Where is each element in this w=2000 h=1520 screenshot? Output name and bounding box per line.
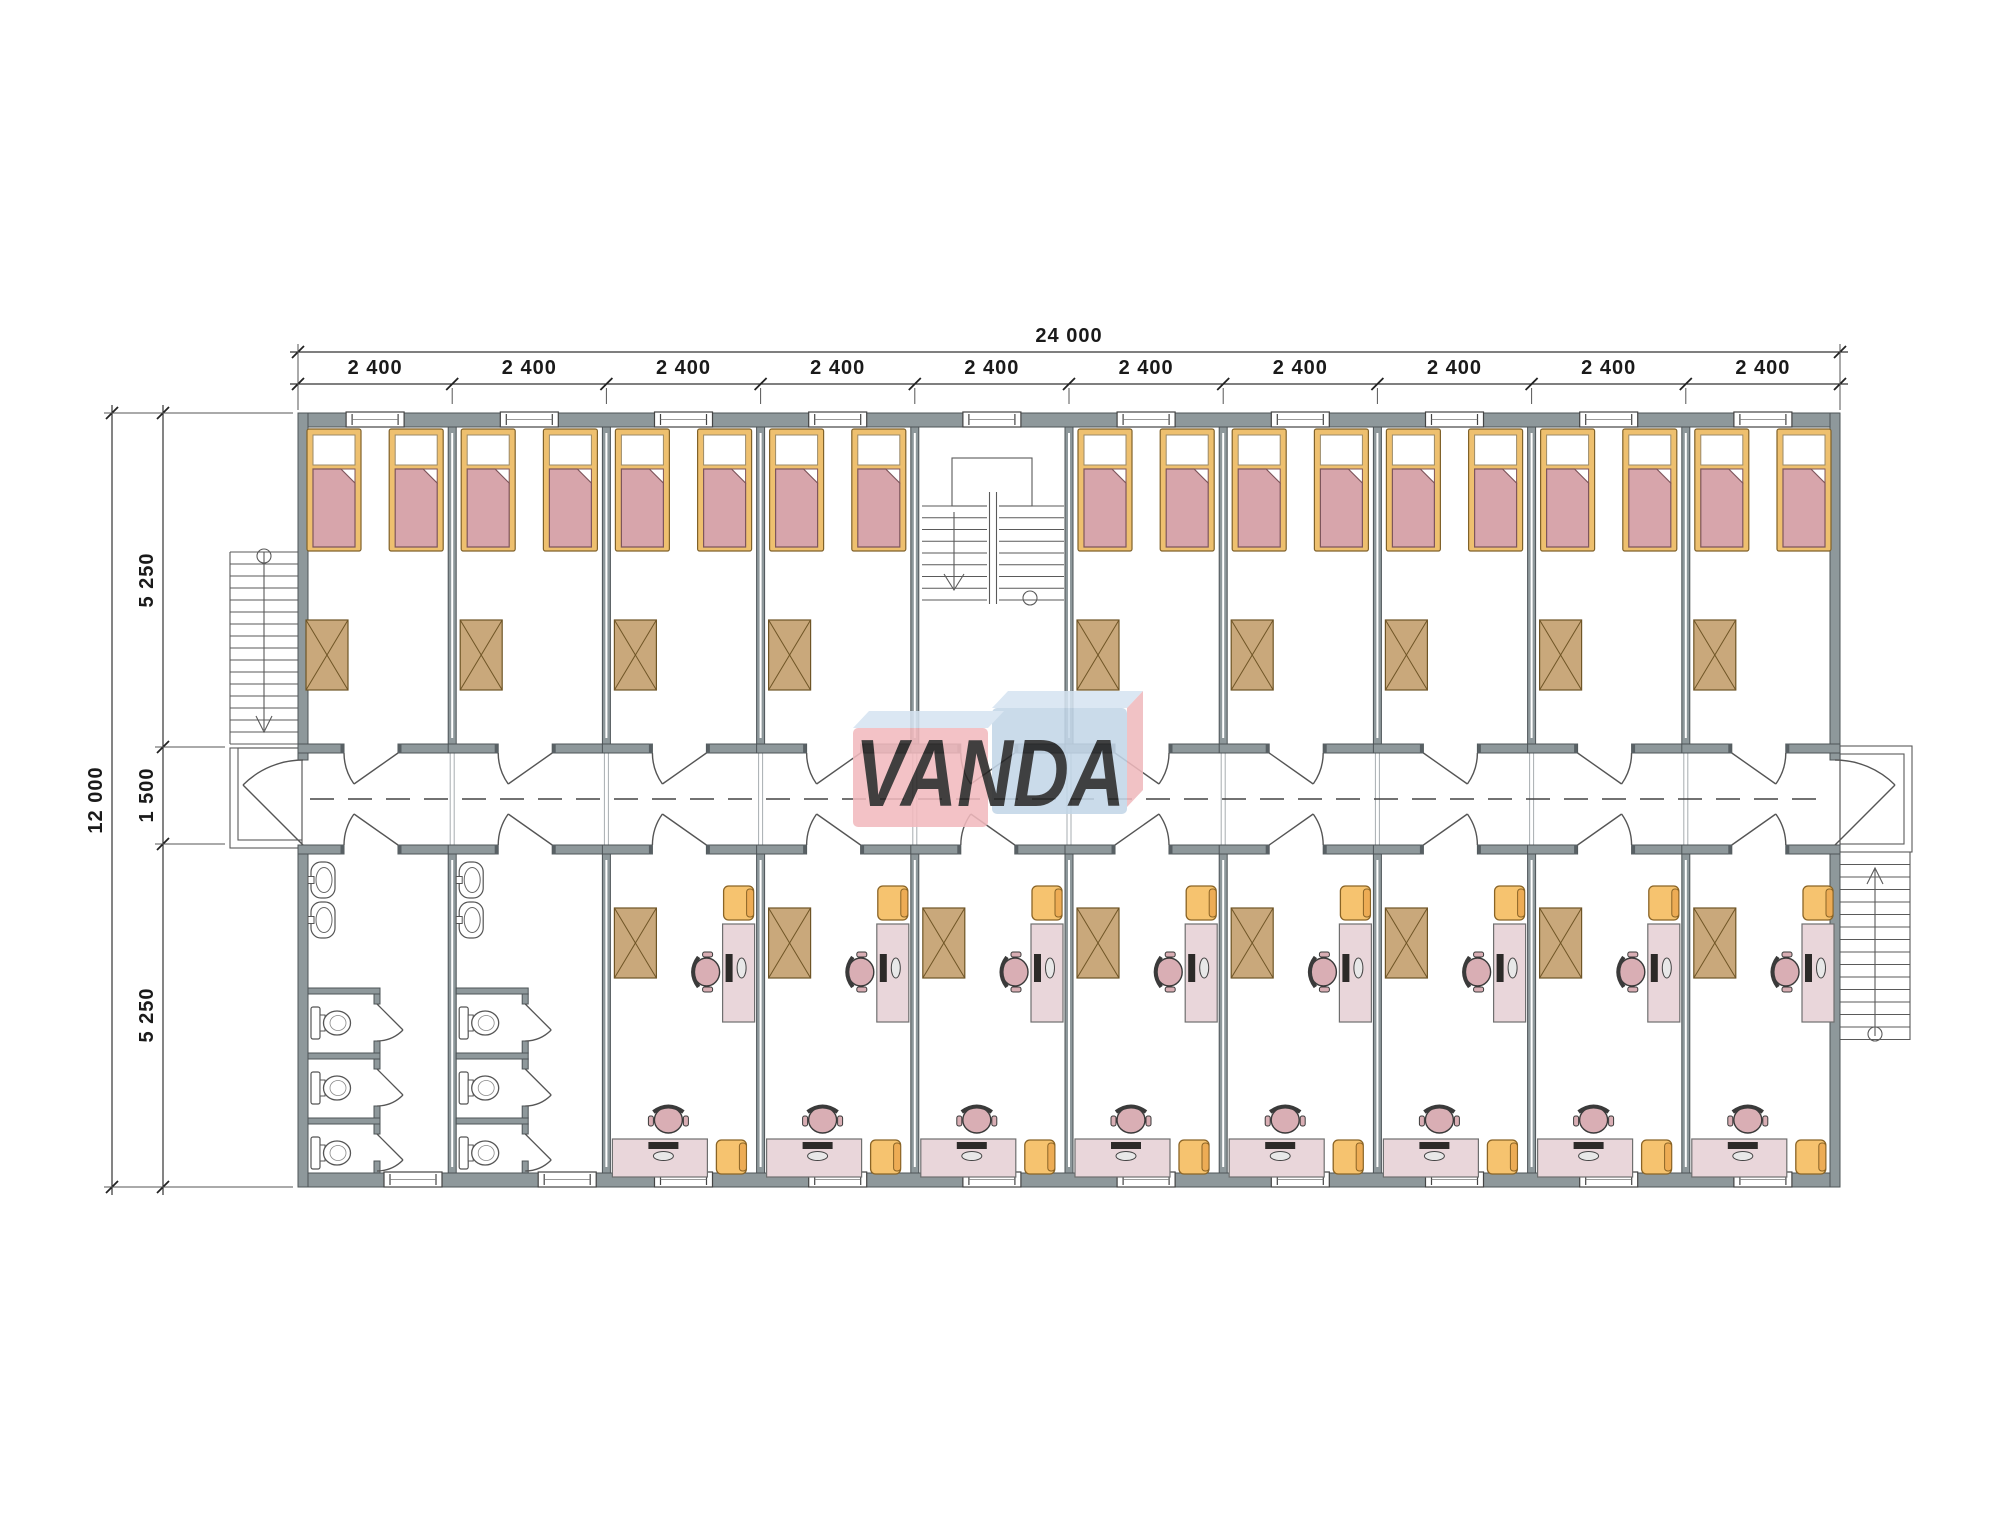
door-leaf: [377, 1004, 403, 1030]
wardrobe-symbol: [614, 620, 656, 690]
door-swing-arc: [807, 753, 817, 784]
door-swing-arc: [1467, 753, 1477, 784]
chair-back: [747, 889, 754, 917]
door-jamb-cap: [706, 845, 710, 855]
office-chair-symbol: [1419, 1107, 1459, 1134]
desk-symbol: [1229, 1139, 1324, 1177]
dim-label-total-width: 24 000: [1035, 325, 1102, 347]
bed-blanket: [1547, 469, 1589, 547]
bed-blanket: [1320, 469, 1362, 547]
corridor-wall-segment: [602, 744, 652, 753]
stall-partition-wall: [456, 988, 528, 994]
bed-pillow: [1238, 435, 1280, 465]
monitor-stand: [1046, 958, 1055, 978]
bed-pillow: [1629, 435, 1671, 465]
dim-label-bay-0: 2 400: [348, 357, 403, 379]
door-jamb-cap: [495, 744, 499, 754]
side-chair-symbol: [1179, 1140, 1209, 1174]
chair-armrest: [1574, 1116, 1579, 1126]
corridor-wall-segment: [398, 744, 456, 753]
bed-pillow: [1701, 435, 1743, 465]
wardrobe-symbol: [769, 620, 811, 690]
wardrobe-symbol: [923, 908, 965, 978]
bed-blanket: [1238, 469, 1280, 547]
side-chair-symbol: [1495, 886, 1525, 920]
door-swing-arc: [1313, 814, 1323, 845]
door-swing-arc: [498, 753, 508, 784]
bed-blanket: [1084, 469, 1126, 547]
chair-armrest: [1165, 987, 1175, 992]
office-chair-symbol: [1111, 1107, 1151, 1134]
dim-label-total-height: 12 000: [85, 766, 107, 833]
office-chair-symbol: [847, 952, 874, 992]
corridor-wall-segment: [398, 845, 456, 854]
corridor-wall-segment: [1373, 845, 1423, 854]
side-chair-symbol: [1186, 886, 1216, 920]
stall-partition-wall: [308, 988, 380, 994]
office-chair-symbol: [1464, 952, 1491, 992]
corridor-wall-segment: [757, 744, 807, 753]
bed-symbol: [1777, 429, 1831, 551]
door-jamb-cap: [1786, 845, 1790, 855]
stair-start-marker: [1023, 591, 1037, 605]
toilet-bowl: [324, 1011, 351, 1035]
bed-symbol: [543, 429, 597, 551]
chair-back: [739, 1143, 746, 1171]
corridor-wall-segment: [1632, 744, 1690, 753]
door-jamb-cap: [341, 744, 345, 754]
bed-blanket: [704, 469, 746, 547]
monitor-icon: [1651, 954, 1658, 982]
wardrobe-symbol: [306, 620, 348, 690]
chair-armrest: [1454, 1116, 1459, 1126]
chair-armrest: [1146, 1116, 1151, 1126]
chair-armrest: [703, 987, 713, 992]
desk-symbol: [1383, 1139, 1478, 1177]
chair-back: [1363, 889, 1370, 917]
door-jamb-cap: [803, 744, 807, 754]
toilet-tank: [311, 1137, 320, 1169]
chair-armrest: [1782, 987, 1792, 992]
monitor-icon: [1342, 954, 1349, 982]
wardrobe-symbol: [1540, 620, 1582, 690]
door-swing-arc: [525, 1160, 551, 1171]
door-jamb-cap: [957, 845, 961, 855]
door-jamb-cap: [1477, 744, 1481, 754]
door-jamb-cap: [1786, 744, 1790, 754]
chair-armrest: [1165, 952, 1175, 957]
wardrobe-symbol: [1694, 620, 1736, 690]
desk-symbol: [1802, 924, 1834, 1022]
door-jamb-cap: [706, 744, 710, 754]
desk-symbol: [1185, 924, 1217, 1022]
door-jamb-cap: [1420, 744, 1424, 754]
corridor-wall-segment: [552, 744, 610, 753]
door-leaf: [377, 1134, 403, 1160]
door-leaf: [1835, 785, 1895, 845]
door-jamb-cap: [341, 845, 345, 855]
toilet-bowl: [472, 1141, 499, 1165]
corridor-wall-segment: [448, 845, 498, 854]
corridor-wall-segment: [1373, 744, 1423, 753]
monitor-icon: [803, 1142, 833, 1149]
sink-symbol: [456, 862, 483, 898]
door-swing-arc: [1159, 753, 1169, 784]
monitor-icon: [1111, 1142, 1141, 1149]
door-swing-arc: [377, 1160, 403, 1171]
bed-pillow: [776, 435, 818, 465]
chair-back: [901, 889, 908, 917]
monitor-stand: [891, 958, 900, 978]
window-symbol: [1580, 412, 1638, 427]
chair-armrest: [1319, 952, 1329, 957]
window-symbol: [538, 1172, 596, 1187]
stall-wall-stub: [374, 1041, 380, 1053]
chair-armrest: [1628, 952, 1638, 957]
chair-back: [1055, 889, 1062, 917]
corridor-wall-segment: [602, 845, 652, 854]
door-jamb-cap: [1266, 845, 1270, 855]
door-jamb-cap: [1420, 845, 1424, 855]
corridor-wall-segment: [1786, 744, 1840, 753]
monitor-stand: [1733, 1152, 1753, 1161]
corridor-wall-segment: [1528, 845, 1578, 854]
office-chair-symbol: [803, 1107, 843, 1134]
wardrobe-symbol: [1077, 908, 1119, 978]
bed-pillow: [858, 435, 900, 465]
door-jamb-cap: [649, 845, 653, 855]
door-leaf: [1732, 753, 1776, 784]
wardrobe-symbol: [1385, 908, 1427, 978]
toilet-tank: [459, 1007, 468, 1039]
corridor-wall-segment: [1477, 744, 1535, 753]
toilet-bowl: [472, 1076, 499, 1100]
chair-armrest: [1628, 987, 1638, 992]
window-symbol: [809, 412, 867, 427]
door-jamb-cap: [1266, 744, 1270, 754]
chair-armrest: [992, 1116, 997, 1126]
monitor-icon: [957, 1142, 987, 1149]
door-leaf: [508, 814, 552, 845]
staircase-central: [922, 458, 1064, 606]
chair-armrest: [1300, 1116, 1305, 1126]
corridor-wall-segment: [1632, 845, 1690, 854]
door-swing-arc: [344, 753, 354, 784]
door-jamb-cap: [1574, 845, 1578, 855]
toilet-bowl: [472, 1011, 499, 1035]
monitor-icon: [1728, 1142, 1758, 1149]
bed-pillow: [1475, 435, 1517, 465]
door-leaf: [508, 753, 552, 784]
monitor-icon: [1574, 1142, 1604, 1149]
door-jamb-cap: [552, 845, 556, 855]
toilet-bowl: [324, 1076, 351, 1100]
chair-armrest: [1419, 1116, 1424, 1126]
bed-blanket: [621, 469, 663, 547]
corridor-wall-segment: [1323, 845, 1381, 854]
door-swing-arc: [377, 1030, 403, 1041]
office-chair-symbol: [1265, 1107, 1305, 1134]
chair-armrest: [1728, 1116, 1733, 1126]
door-swing-arc: [1622, 753, 1632, 784]
chair-armrest: [1474, 987, 1484, 992]
office-chair-symbol: [1773, 952, 1800, 992]
chair-back: [1665, 1143, 1672, 1171]
stall-wall-stub: [374, 1124, 380, 1134]
chair-armrest: [1265, 1116, 1270, 1126]
corridor-wall-segment: [861, 845, 919, 854]
corridor-wall-segment: [757, 845, 807, 854]
stall-partition-wall: [456, 1118, 528, 1124]
corridor-wall-segment: [706, 744, 764, 753]
door-swing-arc: [525, 1030, 551, 1041]
office-chair-symbol: [1156, 952, 1183, 992]
stall-wall-stub: [374, 1059, 380, 1069]
exterior-wall-left: [298, 845, 308, 1187]
door-jamb-cap: [1169, 845, 1173, 855]
toilet-symbol: [311, 1007, 351, 1039]
chair-armrest: [648, 1116, 653, 1126]
sink-symbol: [308, 862, 335, 898]
bed-pillow: [467, 435, 509, 465]
chair-back: [1518, 889, 1525, 917]
side-chair-symbol: [1333, 1140, 1363, 1174]
side-chair-symbol: [1803, 886, 1833, 920]
corridor-wall-segment: [1682, 845, 1732, 854]
monitor-stand: [1270, 1152, 1290, 1161]
monitor-stand: [1200, 958, 1209, 978]
side-chair-symbol: [871, 1140, 901, 1174]
toilet-bowl: [324, 1141, 351, 1165]
monitor-icon: [1034, 954, 1041, 982]
door-jamb-cap: [1323, 744, 1327, 754]
door-leaf: [1578, 814, 1622, 845]
desk-symbol: [921, 1139, 1016, 1177]
door-leaf: [1578, 753, 1622, 784]
toilet-symbol: [311, 1137, 351, 1169]
door-leaf: [243, 785, 303, 845]
desk-symbol: [612, 1139, 707, 1177]
bed-symbol: [615, 429, 669, 551]
desk-symbol: [1031, 924, 1063, 1022]
monitor-icon: [726, 954, 733, 982]
toilet-tank: [311, 1007, 320, 1039]
bed-pillow: [704, 435, 746, 465]
monitor-icon: [880, 954, 887, 982]
door-leaf: [525, 1069, 551, 1095]
bed-blanket: [1392, 469, 1434, 547]
dim-label-bay-2: 2 400: [656, 357, 711, 379]
corridor-wall-segment: [298, 845, 344, 854]
monitor-icon: [1497, 954, 1504, 982]
corridor-wall-segment: [1169, 845, 1227, 854]
corridor-wall-segment: [1015, 845, 1073, 854]
door-swing-arc: [1467, 814, 1477, 845]
sink-symbol: [456, 902, 483, 938]
stall-wall-stub: [522, 1106, 528, 1118]
desk-symbol: [877, 924, 909, 1022]
bed-pillow: [395, 435, 437, 465]
door-swing-arc: [1835, 760, 1895, 785]
door-leaf: [525, 1134, 551, 1160]
wardrobe-symbol: [1694, 908, 1736, 978]
office-chair-symbol: [693, 952, 720, 992]
toilet-symbol: [459, 1137, 499, 1169]
door-jamb-cap: [1728, 845, 1732, 855]
door-leaf: [662, 814, 706, 845]
toilet-symbol: [311, 1072, 351, 1104]
bed-symbol: [698, 429, 752, 551]
window-symbol: [1426, 412, 1484, 427]
sink-tap: [308, 877, 314, 884]
toilet-tank: [311, 1072, 320, 1104]
floor-plan: 24 0002 4002 4002 4002 4002 4002 4002 40…: [0, 0, 2000, 1520]
toilet-symbol: [459, 1007, 499, 1039]
sink-symbol: [308, 902, 335, 938]
door-swing-arc: [344, 814, 354, 845]
door-leaf: [1423, 814, 1467, 845]
desk-symbol: [1538, 1139, 1633, 1177]
side-chair-symbol: [1796, 1140, 1826, 1174]
monitor-stand: [1354, 958, 1363, 978]
stair-rail-gap: [987, 494, 999, 606]
logo-blue-top-face: [992, 691, 1143, 708]
dim-label-bay-5: 2 400: [1119, 357, 1174, 379]
window-symbol: [963, 412, 1021, 427]
monitor-icon: [1265, 1142, 1295, 1149]
door-leaf: [1423, 753, 1467, 784]
bed-symbol: [1623, 429, 1677, 551]
stall-wall-stub: [522, 1059, 528, 1069]
door-swing-arc: [1313, 753, 1323, 784]
office-chair-symbol: [1310, 952, 1337, 992]
chair-armrest: [857, 952, 867, 957]
window-symbol: [1271, 412, 1329, 427]
bed-blanket: [467, 469, 509, 547]
sink-basin: [316, 868, 332, 893]
bed-pillow: [549, 435, 591, 465]
corridor-wall-segment: [1323, 744, 1381, 753]
side-chair-symbol: [1487, 1140, 1517, 1174]
corridor-wall-segment: [706, 845, 764, 854]
door-swing-arc: [243, 760, 303, 785]
desk-symbol: [1494, 924, 1526, 1022]
stall-partition-wall: [308, 1053, 380, 1059]
door-jamb-cap: [495, 845, 499, 855]
bed-blanket: [549, 469, 591, 547]
sink-basin: [464, 908, 480, 933]
bed-pillow: [1783, 435, 1825, 465]
door-swing-arc: [1776, 814, 1786, 845]
door-jamb-cap: [803, 845, 807, 855]
dim-label-bay-6: 2 400: [1273, 357, 1328, 379]
monitor-stand: [1662, 958, 1671, 978]
chair-armrest: [1011, 952, 1021, 957]
desk-symbol: [723, 924, 755, 1022]
door-leaf: [1269, 814, 1313, 845]
dim-label-left-1: 1 500: [136, 767, 158, 822]
door-swing-arc: [652, 753, 662, 784]
chair-armrest: [1782, 952, 1792, 957]
door-jamb-cap: [1477, 845, 1481, 855]
door-swing-arc: [1622, 814, 1632, 845]
corridor-wall-segment: [1528, 744, 1578, 753]
bed-symbol: [1386, 429, 1440, 551]
desk-symbol: [1339, 924, 1371, 1022]
monitor-icon: [1419, 1142, 1449, 1149]
toilet-symbol: [459, 1072, 499, 1104]
window-symbol: [1734, 412, 1792, 427]
door-jamb-cap: [1112, 845, 1116, 855]
dim-label-bay-7: 2 400: [1427, 357, 1482, 379]
door-jamb-cap: [649, 744, 653, 754]
monitor-icon: [648, 1142, 678, 1149]
monitor-stand: [1116, 1152, 1136, 1161]
bed-pillow: [1320, 435, 1362, 465]
bed-pillow: [313, 435, 355, 465]
bed-blanket: [1701, 469, 1743, 547]
corridor-wall-segment: [1065, 845, 1115, 854]
stall-wall-stub: [374, 994, 380, 1004]
stall-wall-stub: [374, 1106, 380, 1118]
chair-back: [1819, 1143, 1826, 1171]
door-swing-arc: [1776, 753, 1786, 784]
dim-label-left-2: 5 250: [136, 987, 158, 1042]
window-symbol: [346, 412, 404, 427]
bed-blanket: [313, 469, 355, 547]
corridor-wall-segment: [1477, 845, 1535, 854]
corridor-wall-segment: [1169, 744, 1227, 753]
door-jamb-cap: [1728, 744, 1732, 754]
monitor-stand: [808, 1152, 828, 1161]
wardrobe-symbol: [769, 908, 811, 978]
chair-armrest: [1474, 952, 1484, 957]
office-chair-symbol: [1618, 952, 1645, 992]
office-chair-symbol: [1728, 1107, 1768, 1134]
side-chair-symbol: [1649, 886, 1679, 920]
door-swing-arc: [652, 814, 662, 845]
sink-tap: [308, 917, 314, 924]
bed-blanket: [858, 469, 900, 547]
desk-symbol: [1075, 1139, 1170, 1177]
desk-symbol: [1648, 924, 1680, 1022]
wardrobe-symbol: [460, 620, 502, 690]
side-chair-symbol: [724, 886, 754, 920]
bed-symbol: [1078, 429, 1132, 551]
chair-back: [1510, 1143, 1517, 1171]
desk-symbol: [767, 1139, 862, 1177]
door-jamb-cap: [398, 744, 402, 754]
door-jamb-cap: [1632, 845, 1636, 855]
monitor-icon: [1188, 954, 1195, 982]
monitor-stand: [962, 1152, 982, 1161]
chair-back: [1202, 1143, 1209, 1171]
bed-pillow: [1166, 435, 1208, 465]
bed-pillow: [1084, 435, 1126, 465]
door-jamb-cap: [1015, 845, 1019, 855]
logo-blue-side-face: [1127, 691, 1143, 807]
sink-tap: [456, 917, 462, 924]
chair-back: [1826, 889, 1833, 917]
monitor-stand: [737, 958, 746, 978]
entrance-landing-left-inner: [238, 748, 302, 840]
chair-armrest: [803, 1116, 808, 1126]
door-jamb-cap: [861, 845, 865, 855]
corridor-wall-segment: [1682, 744, 1732, 753]
dim-label-bay-9: 2 400: [1735, 357, 1790, 379]
wardrobe-symbol: [614, 908, 656, 978]
door-leaf: [354, 753, 398, 784]
